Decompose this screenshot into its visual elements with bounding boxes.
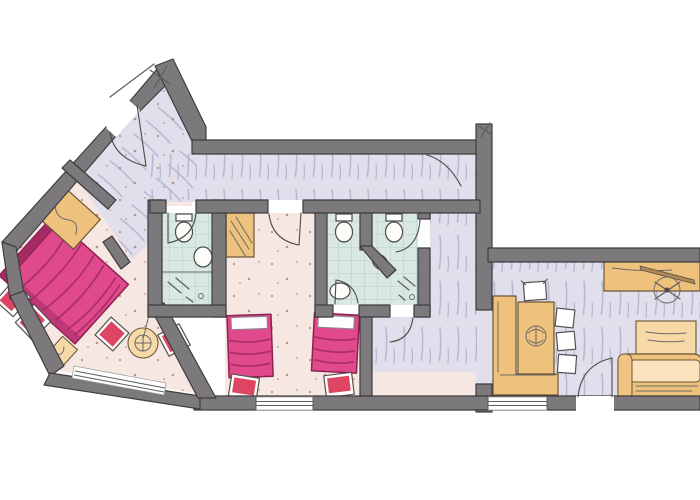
toilet <box>386 214 403 242</box>
bathroom1-left-wall <box>148 200 162 317</box>
bathroom2-right-wall-upper <box>418 213 430 219</box>
dining-chair <box>555 308 575 328</box>
washbasin <box>330 283 350 299</box>
bathroom2-bottom-wall-a <box>315 305 333 317</box>
floor-plan-drawing <box>0 0 700 500</box>
rear-hall-hatch <box>372 317 477 372</box>
bathroom2-left-wall <box>315 213 327 317</box>
closet-niche <box>226 213 254 257</box>
corridor-bottom-wall-a <box>150 200 166 213</box>
bathroom1-bottom-wall <box>148 305 226 317</box>
dining-table-with-centerpiece <box>518 302 554 374</box>
hall-living-passage-floor <box>476 310 492 384</box>
living-room-window <box>488 397 547 410</box>
corridor-right-wall <box>476 124 492 310</box>
bathroom1-right-wall <box>212 200 226 317</box>
rear-hall-pink-strip <box>372 372 477 396</box>
toilet <box>336 214 353 242</box>
bathroom2-bottom-wall-b <box>359 305 390 317</box>
corridor-vertical-hatch <box>430 213 477 317</box>
coffee-table <box>636 321 696 354</box>
single-bed <box>227 314 273 377</box>
corridor-top-wall <box>192 140 482 154</box>
chair <box>324 372 354 397</box>
kids-bedroom-window <box>256 397 313 410</box>
bathroom2-bottom-wall-c <box>414 305 430 317</box>
dining-chair <box>556 331 576 351</box>
corridor-bottom-wall-b <box>196 200 268 213</box>
sofa <box>618 354 700 400</box>
dining-chair <box>557 354 576 373</box>
floor-plan-canvas <box>0 0 700 500</box>
single-bed <box>311 313 359 373</box>
toilet <box>176 214 193 242</box>
bathroom2-divider-wall <box>360 213 372 250</box>
living-top-wall <box>488 248 700 262</box>
kids-hall-wall <box>360 317 372 396</box>
corridor-hatch <box>150 154 477 200</box>
washbasin <box>194 246 212 268</box>
dining-chair <box>521 279 548 301</box>
corridor-bottom-wall-c <box>303 200 480 213</box>
